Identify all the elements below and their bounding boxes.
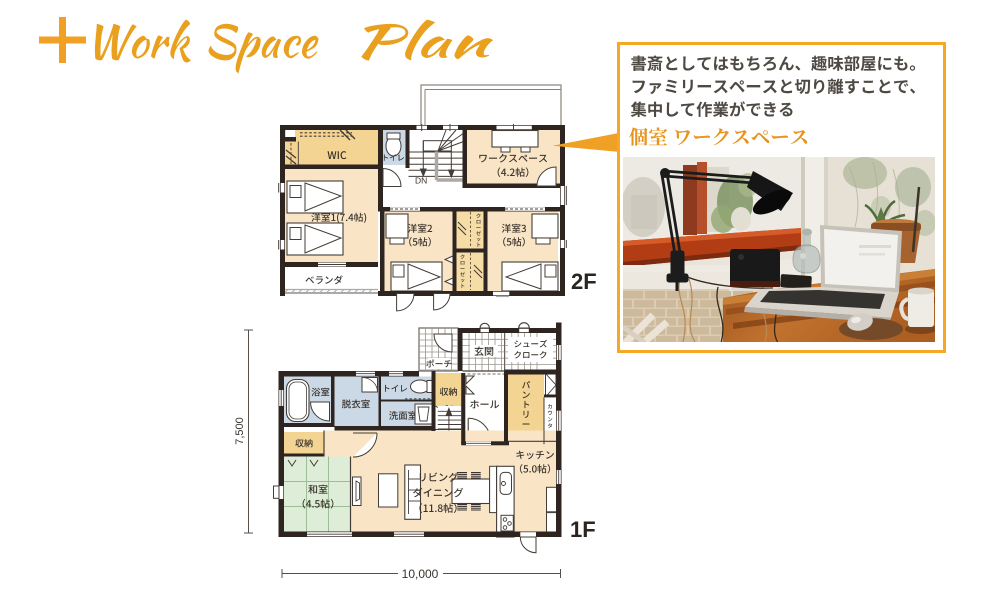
svg-text:10,000: 10,000 [402,567,439,581]
svg-text:DN: DN [415,176,427,186]
svg-text:1F: 1F [570,517,596,542]
svg-text:7,500: 7,500 [234,417,246,445]
svg-text:2F: 2F [571,269,597,294]
